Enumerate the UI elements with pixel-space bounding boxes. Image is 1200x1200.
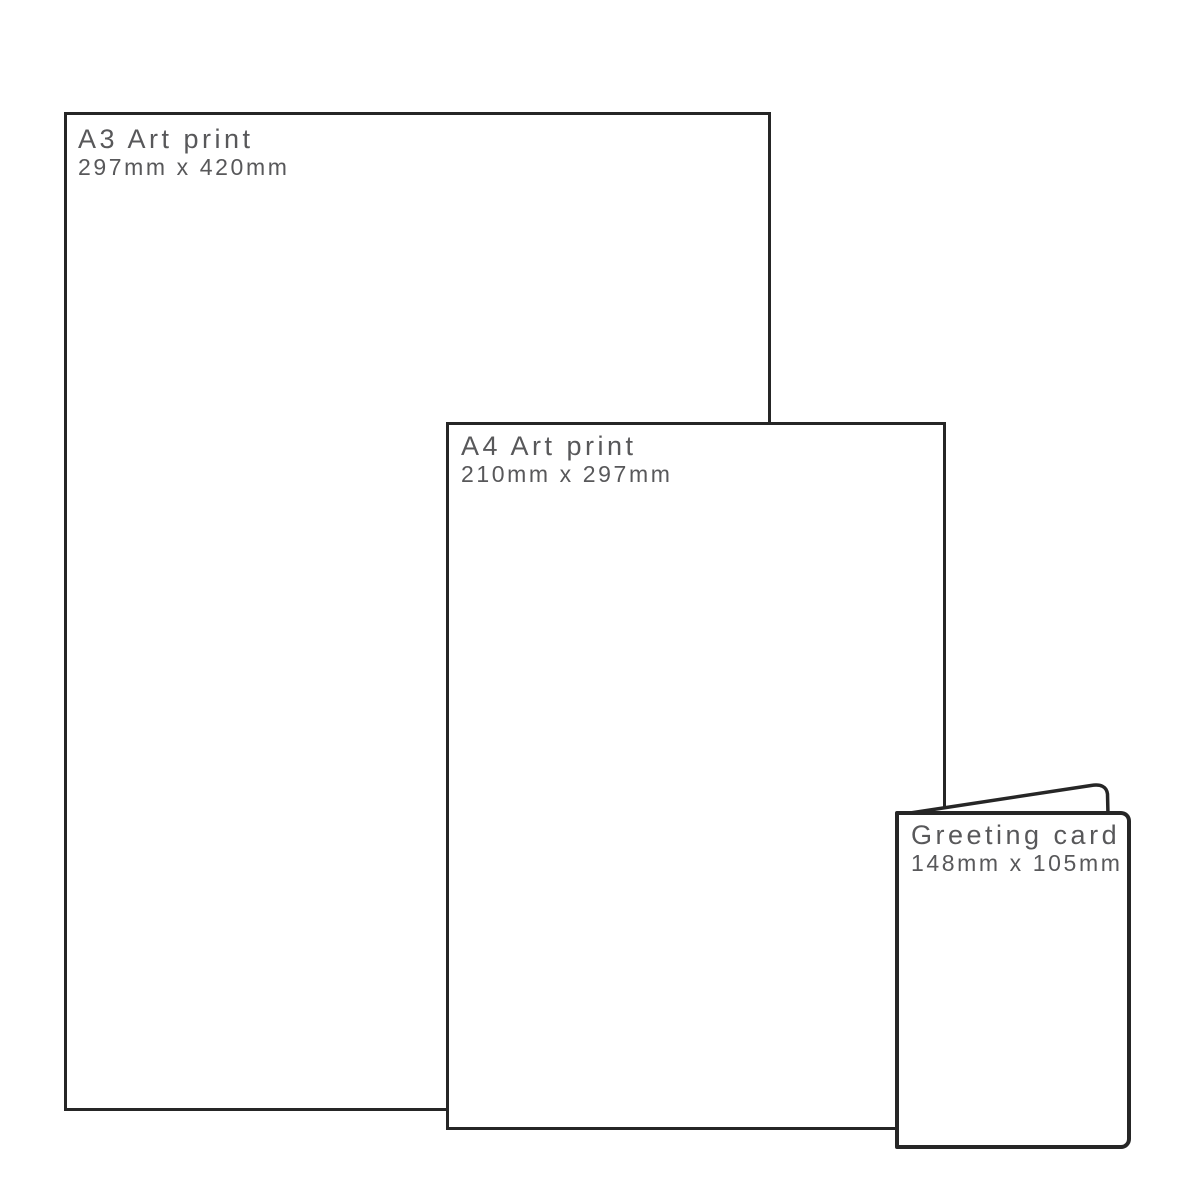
a4-title: A4 Art print: [461, 431, 943, 461]
a3-title: A3 Art print: [78, 124, 768, 154]
a3-dimensions: 297mm x 420mm: [78, 154, 768, 180]
a4-label: A4 Art print 210mm x 297mm: [449, 425, 943, 487]
a4-sheet-outline: A4 Art print 210mm x 297mm: [446, 422, 946, 1130]
greeting-card-dimensions: 148mm x 105mm: [911, 850, 1127, 876]
a3-label: A3 Art print 297mm x 420mm: [67, 115, 768, 180]
greeting-card-label: Greeting card 148mm x 105mm: [899, 815, 1127, 876]
size-comparison-diagram: A3 Art print 297mm x 420mm A4 Art print …: [0, 0, 1200, 1200]
a4-dimensions: 210mm x 297mm: [461, 461, 943, 487]
greeting-card-front-cover: Greeting card 148mm x 105mm: [895, 811, 1131, 1149]
greeting-card-title: Greeting card: [911, 820, 1127, 850]
greeting-card-outline: Greeting card 148mm x 105mm: [895, 779, 1140, 1151]
